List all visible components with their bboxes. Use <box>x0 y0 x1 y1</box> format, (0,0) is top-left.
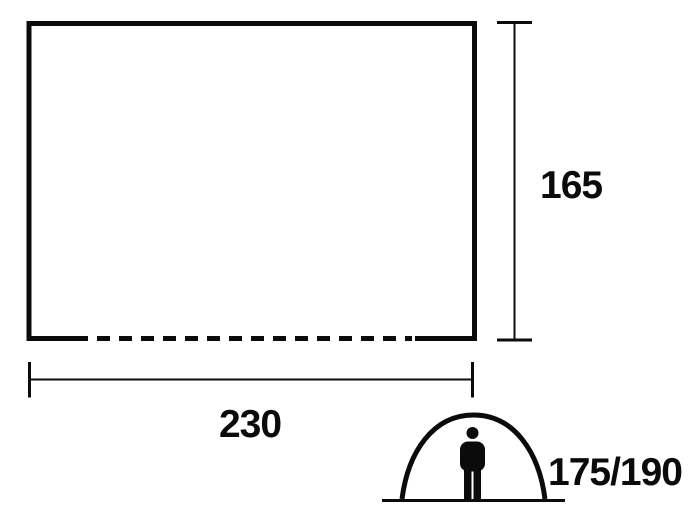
person-head <box>467 427 479 439</box>
person-height-label: 175/190 <box>548 453 682 492</box>
tent-height-icon <box>382 415 565 501</box>
person-right-leg <box>474 462 482 501</box>
width-dimension-label: 230 <box>184 405 316 444</box>
diagram-linework <box>0 0 700 525</box>
floor-plan-rectangle <box>29 24 475 339</box>
person-torso-arms <box>460 442 485 472</box>
person-left-leg <box>464 462 472 501</box>
floor-plan-solid-sides <box>29 24 475 339</box>
standing-person-icon <box>460 427 485 501</box>
height-dimension-line <box>497 23 532 341</box>
depth-dimension-label: 165 <box>540 166 602 205</box>
dimension-diagram: 165 230 175/190 <box>0 0 700 525</box>
width-dimension-line <box>30 362 473 398</box>
